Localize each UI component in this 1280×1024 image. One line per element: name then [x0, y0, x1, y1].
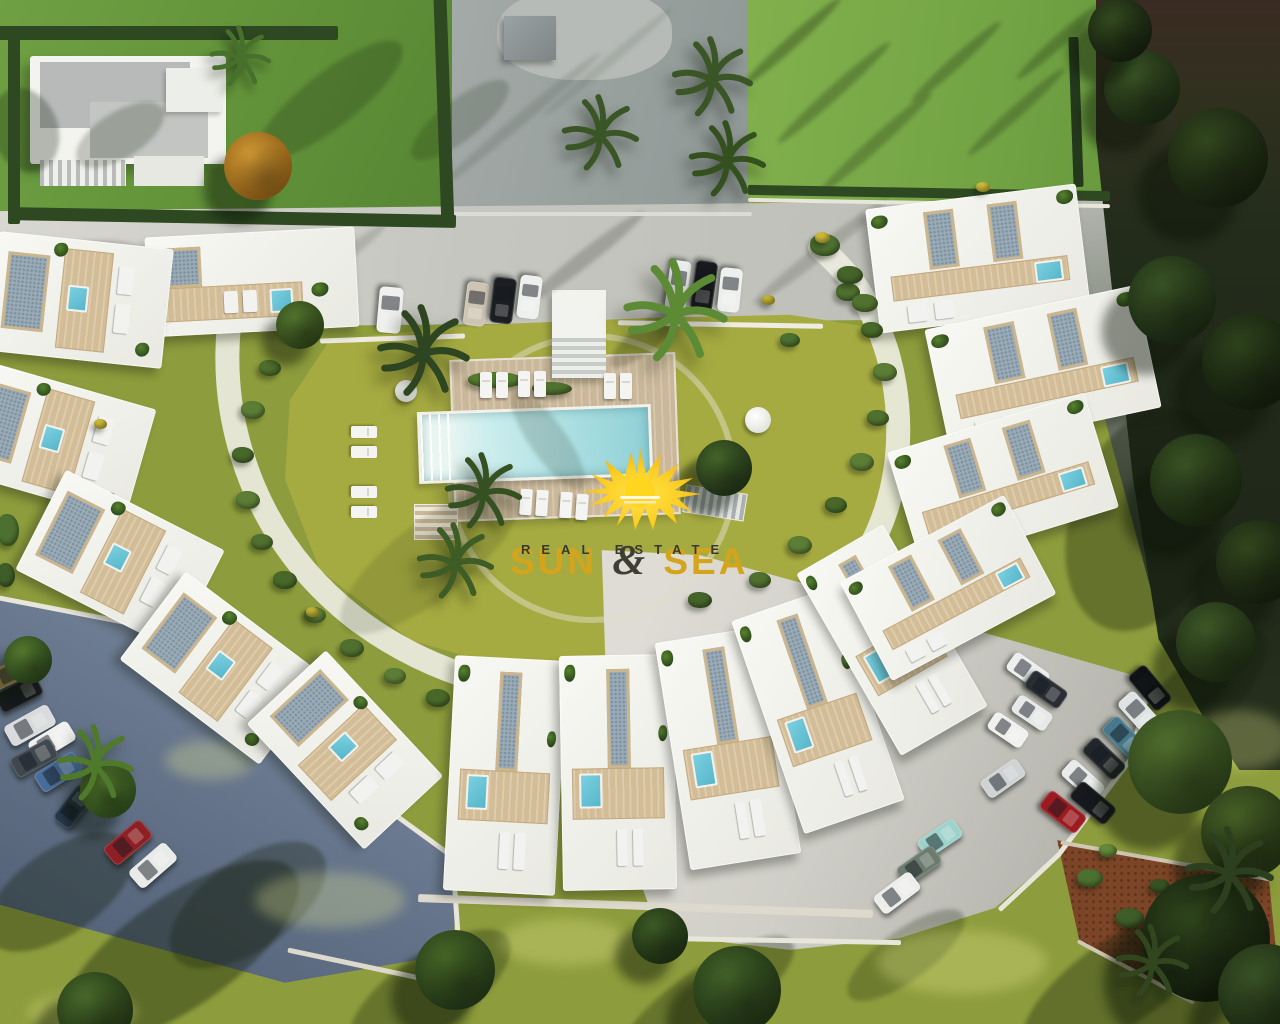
shrub — [236, 491, 260, 509]
sun-lounger — [514, 832, 526, 870]
car-roof-highlight — [1147, 687, 1165, 705]
car-windshield — [3, 687, 22, 707]
terrace-plant — [738, 625, 753, 643]
palm-tree — [558, 92, 642, 176]
palm-tree — [413, 520, 497, 604]
terrace-plant — [311, 282, 329, 297]
sun-lounger — [907, 302, 928, 322]
car-roof-highlight — [34, 745, 51, 762]
gravel-roof — [983, 321, 1025, 384]
car — [979, 757, 1027, 799]
shrub — [837, 266, 863, 284]
tree — [1168, 108, 1268, 208]
car-roof-highlight — [896, 878, 913, 896]
car — [515, 274, 542, 319]
shrub — [867, 410, 889, 426]
sun-lounger — [620, 373, 632, 399]
sun-lounger — [116, 265, 135, 295]
cast-shadow — [774, 37, 894, 147]
palm-tree — [206, 23, 273, 90]
boundary-wall — [998, 851, 1063, 912]
sun-lounger — [223, 291, 239, 314]
gravel-roof — [777, 613, 828, 709]
shrub — [232, 447, 254, 463]
sun-lounger — [617, 828, 628, 866]
car-roof-highlight — [918, 851, 935, 868]
palm-tree — [373, 302, 474, 403]
terrace-plant — [846, 579, 865, 597]
palm-tree — [685, 118, 769, 202]
cast-shadow — [816, 87, 936, 197]
tree — [4, 636, 52, 684]
tree — [415, 930, 495, 1010]
car-roof-highlight — [1007, 727, 1022, 743]
gravel-roof — [0, 381, 32, 464]
shrub — [788, 536, 812, 554]
shrub — [0, 514, 19, 546]
gravel-roof — [943, 437, 987, 498]
shrub — [852, 294, 878, 312]
rooftop-jacuzzi — [579, 772, 602, 808]
gravel-roof — [888, 554, 935, 612]
tree — [1176, 602, 1256, 682]
car-windshield — [18, 751, 38, 772]
car-roof-highlight — [1002, 764, 1019, 781]
cast-shadow — [400, 67, 519, 172]
sun-lounger — [934, 299, 955, 319]
sunlit-patch — [877, 930, 1047, 994]
terrace-plant — [352, 815, 371, 834]
garden-table — [745, 407, 771, 433]
car-windshield — [521, 283, 538, 298]
terrace-plant — [893, 454, 913, 471]
car-roof-highlight — [126, 826, 144, 845]
gravel-roof — [495, 671, 523, 771]
gravel-roof — [702, 646, 739, 745]
boundary-wall — [8, 36, 20, 224]
cast-shadow — [65, 89, 174, 181]
sun-lounger — [750, 799, 766, 837]
rooftop-jacuzzi — [465, 773, 489, 809]
sun-lounger — [534, 371, 546, 397]
shrub — [749, 572, 771, 588]
watermark-logo: SUN & SEA REAL ESTATE — [510, 444, 770, 539]
tree — [1216, 520, 1280, 604]
sun-lounger — [156, 544, 182, 575]
sun-lounger — [82, 450, 105, 481]
terrace-plant — [458, 664, 470, 681]
tree — [1128, 256, 1216, 344]
gravel-roof — [0, 251, 49, 332]
shrub — [94, 419, 107, 429]
sun-lounger — [604, 373, 616, 399]
tree — [1088, 0, 1152, 62]
shrub — [1077, 869, 1103, 887]
shrub — [384, 668, 406, 684]
terrace-plant — [661, 650, 675, 668]
shrub — [273, 571, 297, 589]
sun-lounger — [905, 641, 927, 663]
car-roof-highlight — [1092, 800, 1110, 818]
shrub — [825, 497, 847, 513]
car — [489, 276, 517, 324]
gravel-roof — [1002, 419, 1046, 480]
terrace-plant — [1055, 189, 1074, 205]
tree — [632, 908, 688, 964]
cast-shadow — [907, 17, 1004, 106]
car-roof-highlight — [1102, 756, 1119, 773]
sun-lounger — [926, 630, 948, 652]
shrub — [873, 363, 897, 381]
aerial-site-render: SUN & SEA REAL ESTATE — [0, 0, 1280, 1024]
sunlit-patch — [255, 872, 405, 928]
shrub — [762, 295, 775, 305]
terrace-plant — [547, 730, 557, 747]
car-roof-highlight — [494, 303, 509, 317]
terrace-plant — [564, 665, 576, 682]
palm-tree — [53, 722, 137, 806]
sunlit-patch — [500, 918, 630, 966]
sun-icon — [565, 444, 715, 534]
sun-lounger — [633, 828, 644, 866]
car-roof-highlight — [1031, 710, 1046, 726]
terrace-plant — [134, 342, 149, 358]
tree — [276, 301, 324, 349]
boundary-wall — [8, 207, 456, 228]
car-roof-highlight — [30, 711, 48, 729]
gravel-roof — [606, 668, 631, 767]
palm-tree — [668, 34, 756, 122]
sun-lounger — [242, 290, 258, 313]
sun-lounger — [351, 426, 377, 438]
building-unit — [0, 231, 173, 369]
sun-lounger — [255, 661, 283, 692]
car-windshield — [13, 718, 34, 740]
sun-lounger — [498, 831, 510, 869]
shrub — [259, 360, 281, 376]
sun-lounger — [496, 372, 508, 398]
shrub — [780, 333, 800, 347]
tree — [693, 946, 781, 1024]
sun-lounger — [112, 304, 131, 334]
car-roof-highlight — [1062, 809, 1080, 827]
shrub — [340, 639, 364, 657]
car-roof-highlight — [521, 300, 535, 313]
shrub — [0, 563, 15, 587]
shrub — [688, 592, 712, 608]
tree — [1202, 314, 1280, 410]
brand-tagline: REAL ESTATE — [510, 542, 730, 557]
sun-lounger — [351, 486, 377, 498]
car-windshield — [495, 285, 513, 301]
car-roof-highlight — [939, 824, 956, 841]
tree — [1150, 434, 1242, 526]
rooftop-jacuzzi — [65, 284, 89, 312]
shrub — [815, 232, 830, 243]
shrub — [306, 607, 319, 617]
sun-lounger — [480, 372, 492, 398]
sun-lounger — [375, 752, 404, 781]
sun-lounger — [351, 506, 377, 518]
sun-lounger — [518, 371, 530, 397]
palm-tree — [618, 255, 731, 368]
terrace-plant — [658, 724, 667, 741]
palm-tree — [1181, 824, 1278, 921]
sun-lounger — [350, 775, 379, 804]
shrub — [976, 182, 990, 192]
gravel-roof — [923, 208, 959, 269]
shrub — [426, 689, 450, 707]
car — [872, 870, 922, 915]
terrace-plant — [930, 332, 950, 349]
sun-lounger — [734, 801, 750, 839]
boundary-wall — [0, 26, 338, 40]
gravel-roof — [1047, 307, 1089, 370]
terrace-plant — [804, 574, 820, 592]
gravel-roof — [986, 200, 1022, 261]
shrub — [241, 401, 265, 419]
sun-lounger — [351, 446, 377, 458]
gravel-roof — [937, 528, 984, 586]
terrace-plant — [989, 501, 1008, 519]
boundary-wall — [1068, 37, 1083, 187]
building-unit — [145, 227, 360, 338]
terrace-plant — [1066, 398, 1086, 415]
shrub — [1099, 844, 1117, 857]
car-roof-highlight — [151, 849, 169, 868]
building-unit — [443, 655, 567, 896]
building-unit — [559, 654, 677, 891]
tree — [224, 132, 292, 200]
shrub — [861, 322, 883, 338]
palm-tree — [1112, 922, 1192, 1002]
terrace-plant — [870, 214, 889, 230]
boundary-wall — [452, 212, 752, 216]
shrub — [850, 453, 874, 471]
shrub — [251, 534, 273, 550]
rooftop-jacuzzi — [1034, 258, 1064, 282]
car-roof-highlight — [1045, 686, 1061, 703]
